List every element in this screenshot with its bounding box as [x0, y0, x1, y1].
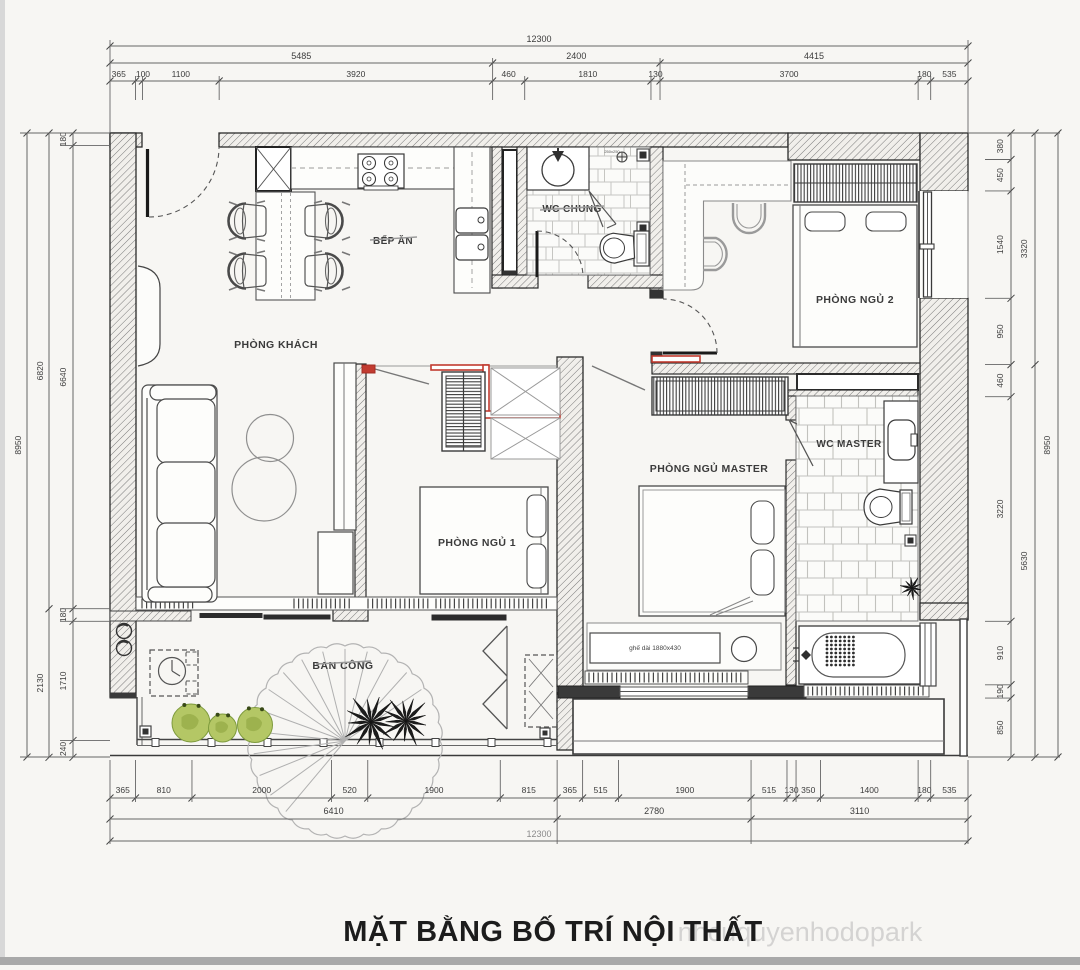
svg-text:810: 810	[157, 785, 171, 795]
svg-text:350: 350	[801, 785, 815, 795]
svg-text:2780: 2780	[644, 806, 664, 816]
svg-text:1710: 1710	[58, 671, 68, 690]
svg-text:180: 180	[58, 608, 68, 622]
svg-text:PHÒNG KHÁCH: PHÒNG KHÁCH	[234, 338, 318, 351]
svg-text:8950: 8950	[13, 435, 23, 454]
svg-text:460: 460	[502, 69, 516, 79]
svg-text:5485: 5485	[291, 51, 311, 61]
svg-text:3110: 3110	[850, 806, 869, 816]
svg-text:2000: 2000	[252, 785, 271, 795]
svg-text:1540: 1540	[995, 235, 1005, 254]
svg-text:ghế dài 1880x430: ghế dài 1880x430	[629, 643, 681, 652]
svg-text:910: 910	[995, 646, 1005, 660]
svg-text:8950: 8950	[1042, 435, 1052, 454]
svg-text:450: 450	[995, 168, 1005, 182]
svg-text:1900: 1900	[675, 785, 694, 795]
svg-text:100: 100	[136, 69, 150, 79]
svg-text:3700: 3700	[780, 69, 799, 79]
svg-text:12300: 12300	[526, 34, 551, 44]
svg-text:4415: 4415	[804, 51, 824, 61]
svg-text:365: 365	[563, 785, 577, 795]
svg-text:5630: 5630	[1019, 551, 1029, 570]
svg-text:250x250: 250x250	[604, 149, 620, 154]
svg-text:WC MASTER: WC MASTER	[816, 439, 882, 450]
svg-text:6640: 6640	[58, 367, 68, 386]
svg-text:1400: 1400	[860, 785, 879, 795]
svg-text:240: 240	[58, 742, 68, 756]
svg-text:380: 380	[995, 139, 1005, 153]
svg-text:MẶT BẰNG BỐ TRÍ NỘI THẤT: MẶT BẰNG BỐ TRÍ NỘI THẤT	[343, 914, 763, 948]
svg-text:3320: 3320	[1019, 239, 1029, 258]
svg-text:950: 950	[995, 324, 1005, 338]
svg-text:6410: 6410	[324, 806, 344, 816]
svg-text:PHÒNG NGỦ 2: PHÒNG NGỦ 2	[816, 293, 894, 306]
svg-text:460: 460	[995, 373, 1005, 387]
svg-text:180: 180	[917, 785, 931, 795]
svg-text:3220: 3220	[995, 499, 1005, 518]
svg-text:2130: 2130	[35, 673, 45, 692]
svg-text:12300: 12300	[526, 829, 551, 839]
svg-text:535: 535	[942, 785, 956, 795]
svg-text:3920: 3920	[346, 69, 365, 79]
svg-text:BẾP ĂN: BẾP ĂN	[373, 234, 413, 247]
svg-text:365: 365	[116, 785, 130, 795]
svg-text:6820: 6820	[35, 361, 45, 380]
svg-text:1810: 1810	[578, 69, 597, 79]
svg-text:815: 815	[522, 785, 536, 795]
svg-text:1100: 1100	[172, 69, 191, 79]
svg-text:180: 180	[58, 132, 68, 146]
svg-text:520: 520	[343, 785, 357, 795]
svg-text:2400: 2400	[566, 51, 586, 61]
svg-text:180: 180	[917, 69, 931, 79]
svg-text:1900: 1900	[425, 785, 444, 795]
svg-text:515: 515	[593, 785, 607, 795]
svg-text:PHÒNG NGỦ 1: PHÒNG NGỦ 1	[438, 536, 516, 549]
svg-text:PHÒNG NGỦ MASTER: PHÒNG NGỦ MASTER	[650, 462, 768, 475]
svg-text:515: 515	[762, 785, 776, 795]
svg-text:365: 365	[112, 69, 126, 79]
svg-text:850: 850	[995, 720, 1005, 734]
svg-text:535: 535	[942, 69, 956, 79]
svg-text:190: 190	[995, 684, 1005, 698]
